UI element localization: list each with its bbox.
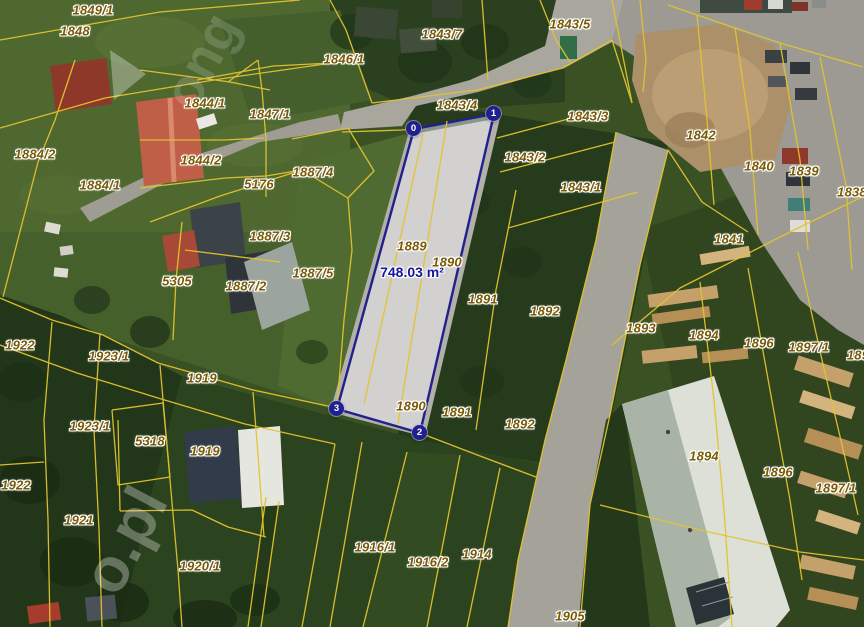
- vertex-marker-1[interactable]: 1: [486, 106, 501, 121]
- vertex-marker-layer: 0123: [0, 0, 864, 627]
- vertex-marker-3[interactable]: 3: [329, 401, 344, 416]
- vertex-marker-0[interactable]: 0: [406, 121, 421, 136]
- map-viewport[interactable]: ongo.pl 1849/118481846/11843/71843/51844…: [0, 0, 864, 627]
- vertex-marker-2[interactable]: 2: [412, 425, 427, 440]
